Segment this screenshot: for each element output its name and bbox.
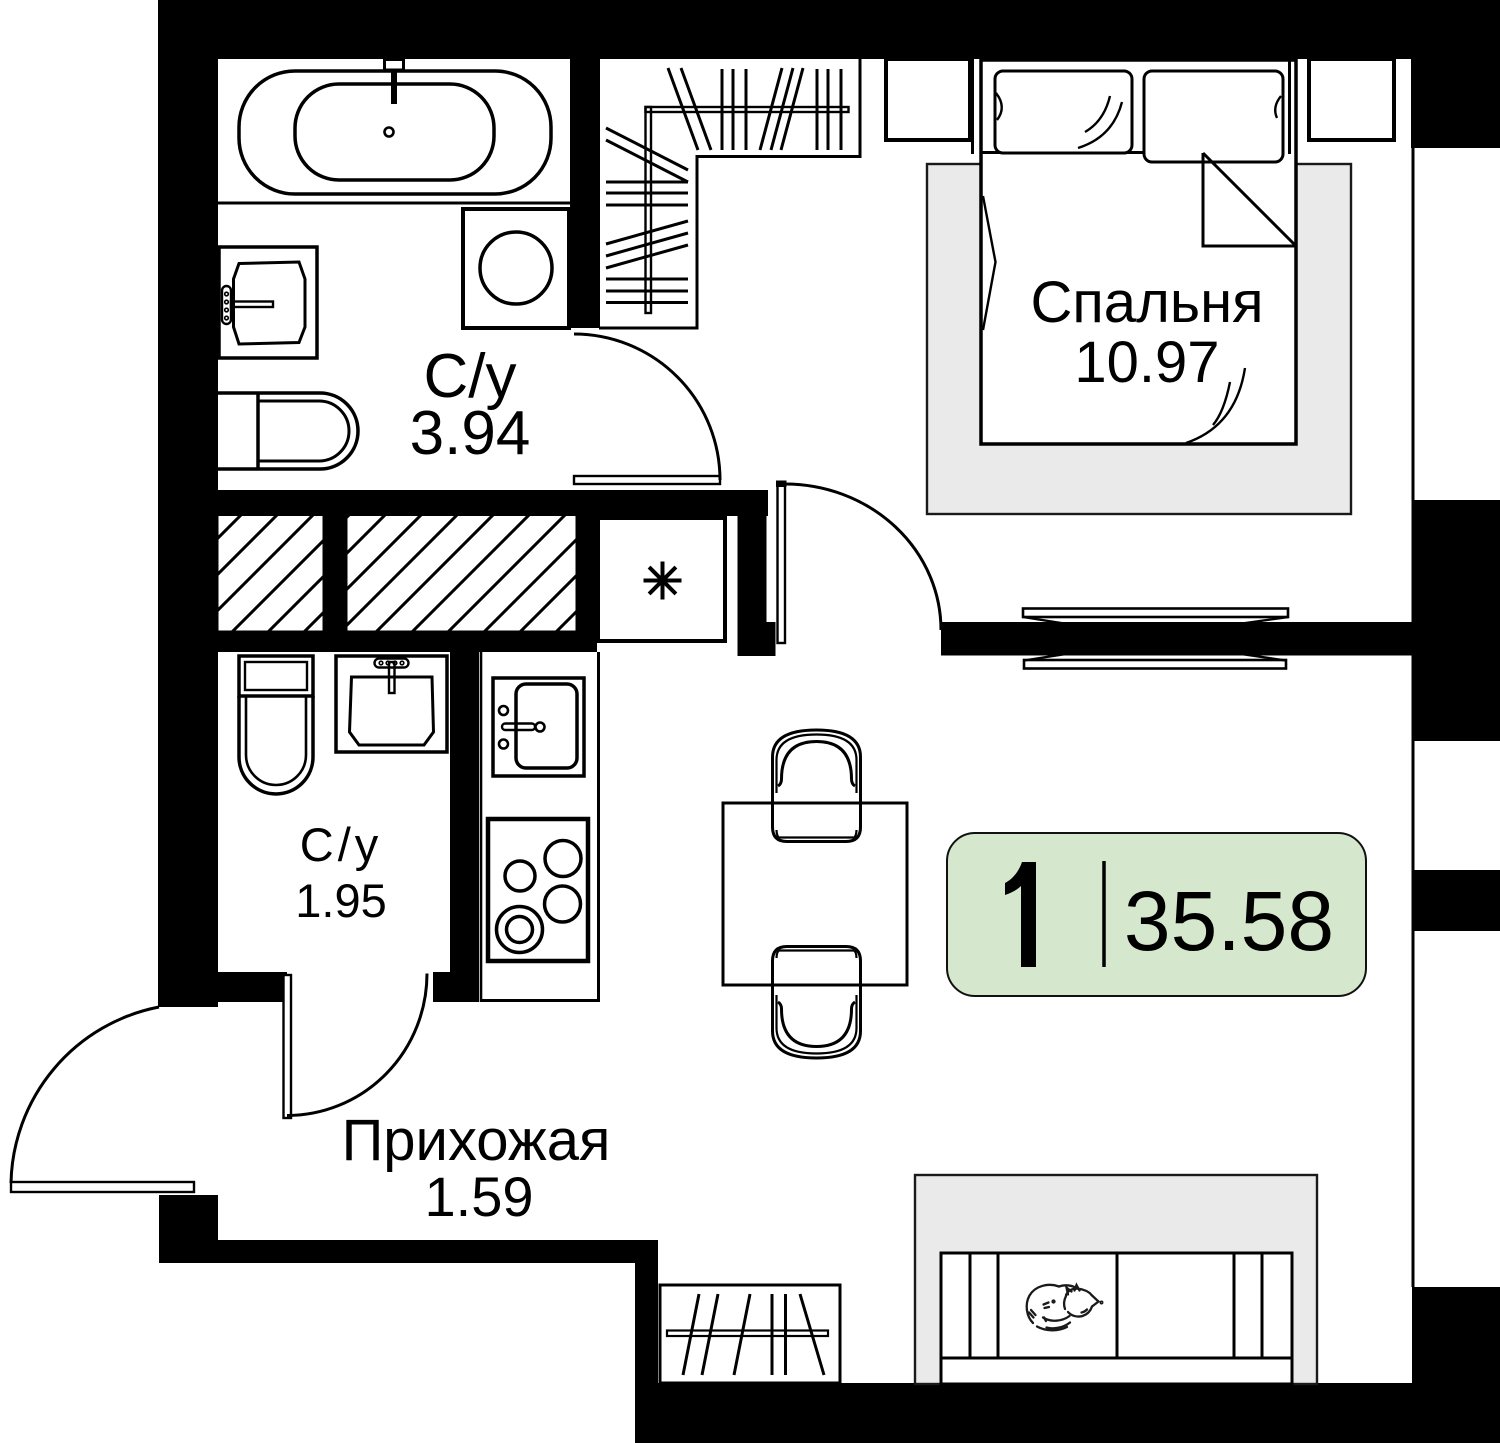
svg-text:1.59: 1.59 (425, 1165, 534, 1228)
svg-text:35.58: 35.58 (1124, 874, 1334, 968)
svg-text:Прихожая: Прихожая (342, 1108, 611, 1173)
svg-text:Спальня: Спальня (1030, 270, 1263, 335)
svg-text:1.95: 1.95 (295, 874, 386, 927)
svg-text:С/у: С/у (300, 818, 383, 871)
svg-text:3.94: 3.94 (410, 399, 531, 468)
svg-text:10.97: 10.97 (1074, 330, 1219, 395)
